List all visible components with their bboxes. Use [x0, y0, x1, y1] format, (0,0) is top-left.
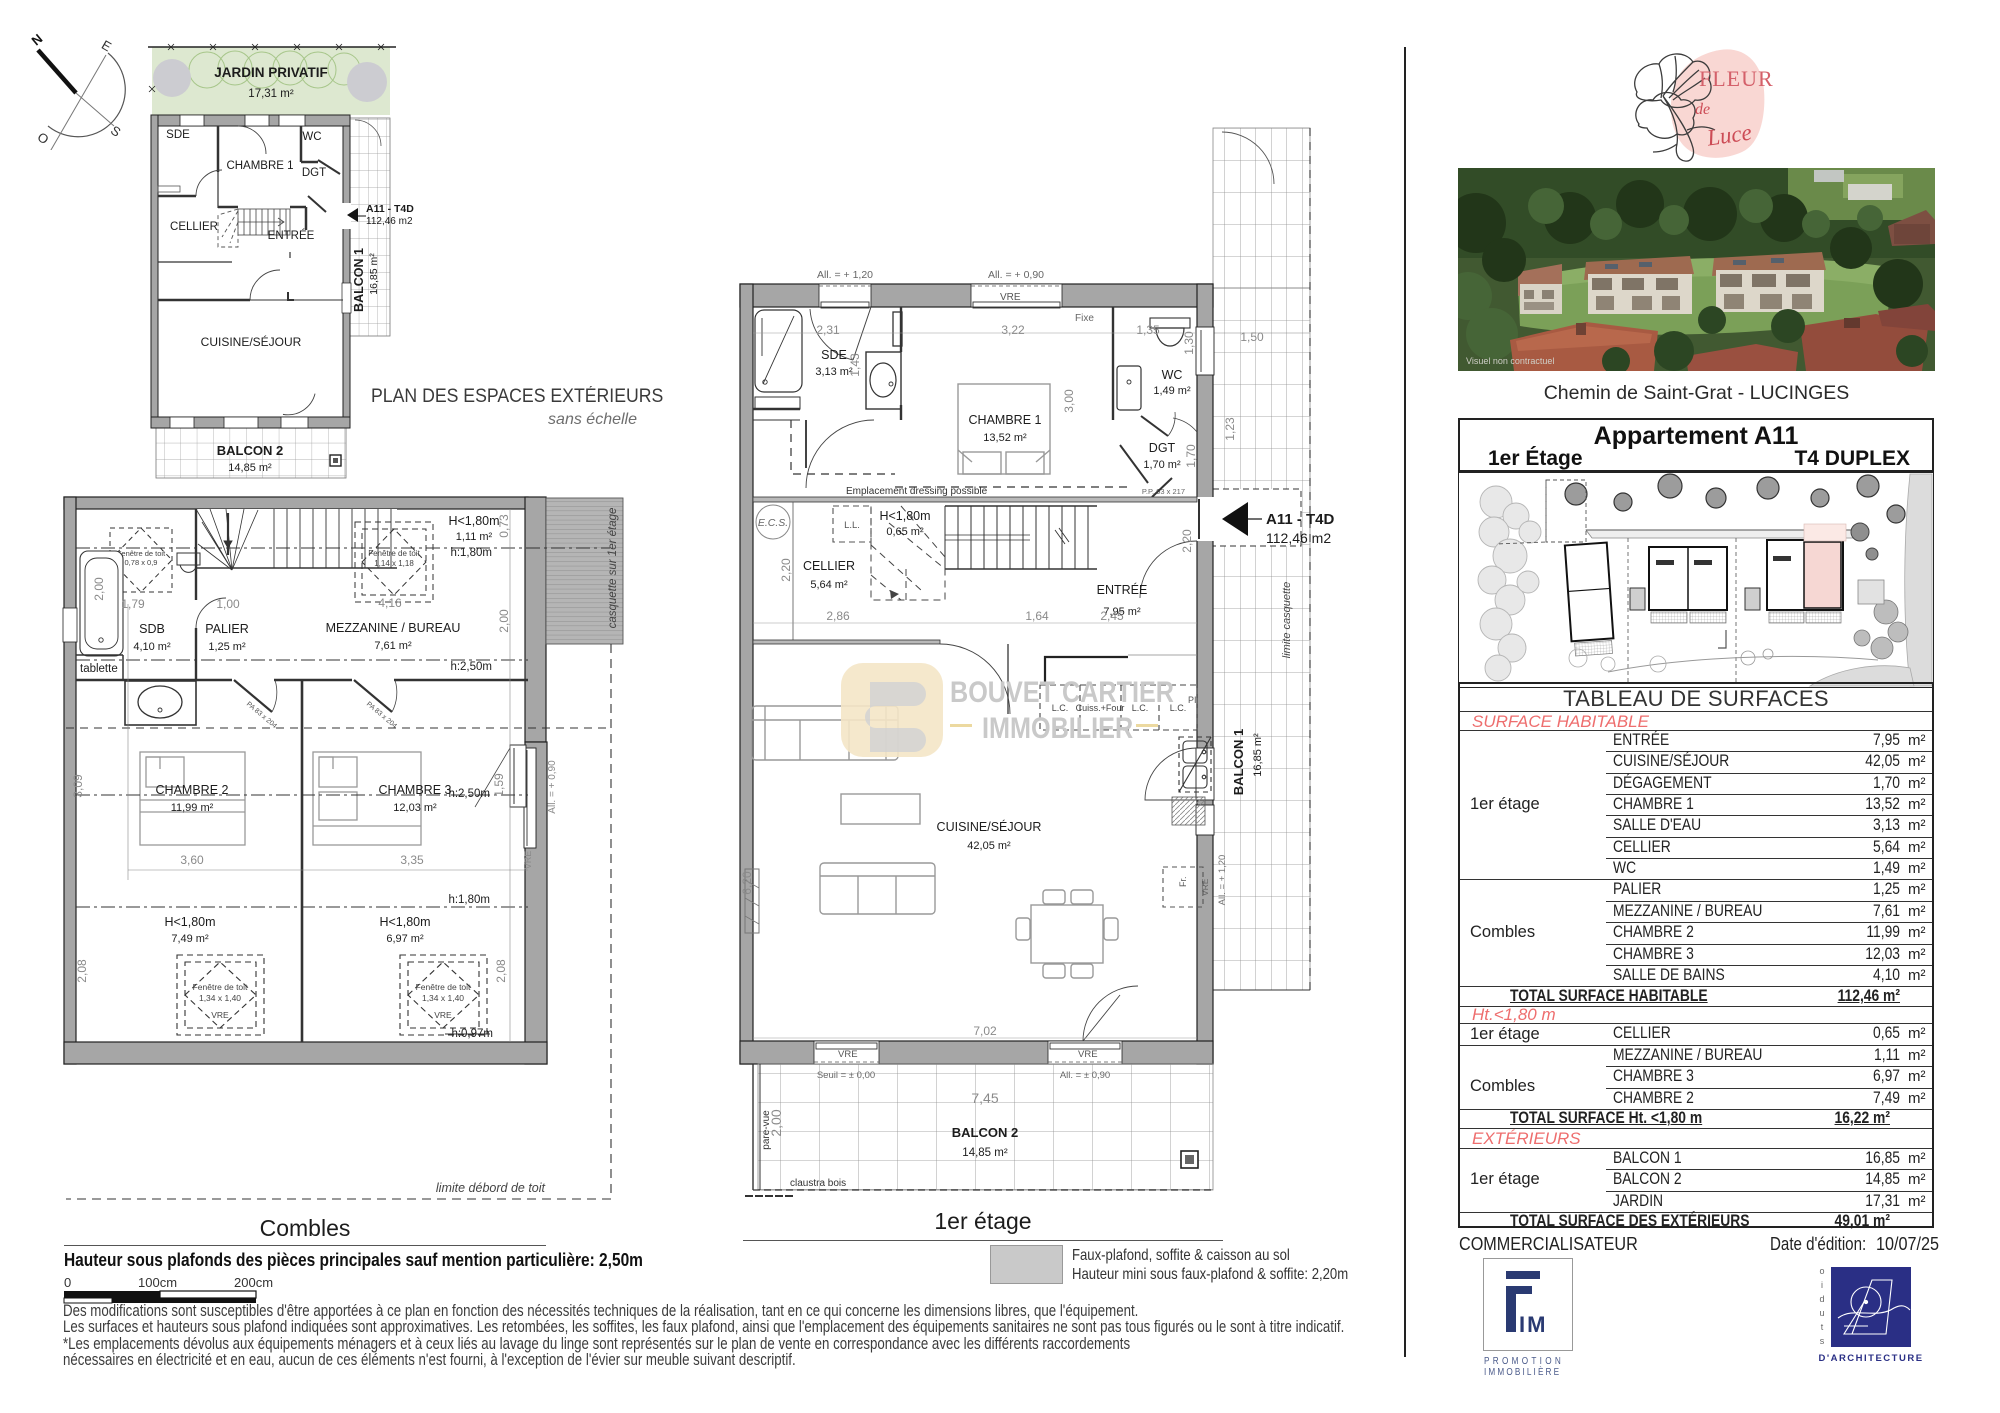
- svg-text:All. = + 0,90: All. = + 0,90: [547, 760, 558, 814]
- svg-text:2,45: 2,45: [1100, 609, 1124, 623]
- svg-text:112,46 m2: 112,46 m2: [366, 216, 413, 227]
- svg-text:PA 83 x 204: PA 83 x 204: [245, 701, 278, 730]
- svg-text:CHAMBRE 3: CHAMBRE 3: [379, 783, 452, 797]
- svg-text:6,20: 6,20: [740, 871, 754, 895]
- svg-text:O: O: [35, 129, 52, 147]
- svg-text:1,64: 1,64: [1025, 609, 1049, 623]
- svg-text:PI: PI: [1188, 695, 1197, 705]
- svg-text:L.L.: L.L.: [844, 520, 860, 531]
- svg-text:3,60: 3,60: [180, 853, 204, 867]
- svg-text:BALCON 1: BALCON 1: [1231, 729, 1246, 795]
- svg-text:0,73: 0,73: [497, 514, 511, 538]
- svg-text:Fenêtre de toit: Fenêtre de toit: [416, 982, 471, 992]
- svg-text:1,35: 1,35: [1136, 323, 1160, 337]
- svg-text:D'ARCHITECTURE: D'ARCHITECTURE: [1818, 1353, 1923, 1364]
- svg-text:14,85 m²: 14,85 m²: [228, 462, 272, 474]
- svg-text:t: t: [1821, 1322, 1824, 1332]
- svg-text:tablette: tablette: [80, 663, 118, 675]
- svg-text:112,46 m2: 112,46 m2: [1266, 530, 1331, 546]
- svg-text:limite casquette: limite casquette: [1281, 582, 1293, 658]
- svg-text:2,86: 2,86: [826, 609, 850, 623]
- svg-text:1,11 m²: 1,11 m²: [456, 531, 493, 543]
- svg-text:4,16: 4,16: [378, 596, 402, 610]
- svg-text:17,31 m²: 17,31 m²: [248, 88, 294, 100]
- svg-text:VRE: VRE: [838, 1049, 858, 1060]
- svg-text:WC: WC: [1162, 368, 1183, 382]
- svg-text:CHAMBRE 1: CHAMBRE 1: [969, 413, 1042, 427]
- svg-text:1,14 x 1,18: 1,14 x 1,18: [374, 559, 414, 568]
- svg-text:A11 - T4D: A11 - T4D: [366, 203, 414, 215]
- svg-text:ENTRÉE: ENTRÉE: [1097, 582, 1148, 597]
- svg-text:6,97 m²: 6,97 m²: [386, 933, 424, 945]
- svg-text:N: N: [30, 31, 45, 49]
- svg-text:Fixe: Fixe: [1075, 313, 1094, 324]
- svg-text:h:2,50m: h:2,50m: [448, 788, 490, 800]
- svg-text:DGT: DGT: [1149, 441, 1176, 455]
- svg-text:0,65 m²: 0,65 m²: [886, 526, 924, 538]
- svg-text:CHAMBRE 1: CHAMBRE 1: [226, 160, 293, 172]
- svg-text:1,70: 1,70: [1184, 444, 1198, 468]
- svg-text:200cm: 200cm: [234, 1275, 273, 1290]
- svg-text:i: i: [1821, 1280, 1823, 1290]
- svg-text:0: 0: [64, 1275, 71, 1290]
- svg-text:VRE: VRE: [1000, 292, 1021, 303]
- svg-text:0,78 x 0,9: 0,78 x 0,9: [125, 558, 158, 567]
- svg-text:1,34 x 1,40: 1,34 x 1,40: [422, 993, 464, 1003]
- svg-text:1,30: 1,30: [1182, 331, 1196, 355]
- svg-text:s: s: [1820, 1336, 1825, 1346]
- svg-text:VRE: VRE: [211, 1010, 229, 1020]
- svg-text:CUISINE/SÉJOUR: CUISINE/SÉJOUR: [937, 819, 1042, 834]
- svg-text:1,79: 1,79: [121, 597, 145, 611]
- svg-text:SDE: SDE: [166, 129, 190, 141]
- svg-text:3,00: 3,00: [1062, 389, 1076, 413]
- svg-text:1,50: 1,50: [1240, 330, 1264, 344]
- svg-text:BALCON 1: BALCON 1: [352, 248, 366, 312]
- svg-text:Fenêtre de toit: Fenêtre de toit: [193, 982, 248, 992]
- svg-text:MEZZANINE / BUREAU: MEZZANINE / BUREAU: [326, 621, 461, 635]
- svg-text:11,99 m²: 11,99 m²: [171, 802, 214, 814]
- svg-text:16,85 m²: 16,85 m²: [1252, 733, 1264, 777]
- svg-text:Fenêtre de toit: Fenêtre de toit: [368, 549, 420, 558]
- svg-text:2,20: 2,20: [1180, 529, 1194, 553]
- svg-text:H<1,80m: H<1,80m: [164, 915, 215, 929]
- svg-text:13,52 m²: 13,52 m²: [983, 432, 1027, 444]
- svg-text:limite débord de toit: limite débord de toit: [436, 1181, 546, 1195]
- svg-text:u: u: [1819, 1308, 1824, 1318]
- svg-text:WC: WC: [302, 131, 321, 143]
- svg-text:E: E: [99, 37, 114, 54]
- svg-text:d: d: [1819, 1294, 1824, 1304]
- svg-text:7,02: 7,02: [973, 1024, 997, 1038]
- svg-text:SDE: SDE: [821, 348, 847, 362]
- svg-text:All. = + 1,20: All. = + 1,20: [1217, 855, 1228, 906]
- svg-text:16,85 m²: 16,85 m²: [368, 253, 380, 295]
- svg-text:1,00: 1,00: [216, 597, 240, 611]
- svg-text:BALCON 2: BALCON 2: [217, 443, 283, 458]
- svg-text:VRE: VRE: [1078, 1049, 1098, 1060]
- svg-text:de: de: [1695, 101, 1710, 118]
- svg-text:1,25 m²: 1,25 m²: [208, 641, 246, 653]
- svg-text:2,00: 2,00: [92, 577, 106, 601]
- svg-text:CUISINE/SÉJOUR: CUISINE/SÉJOUR: [201, 334, 302, 349]
- svg-text:claustra bois: claustra bois: [790, 1178, 846, 1189]
- svg-text:4,10 m²: 4,10 m²: [133, 641, 171, 653]
- svg-text:DGT: DGT: [302, 167, 326, 179]
- svg-text:100cm: 100cm: [138, 1275, 177, 1290]
- svg-text:H<1,80m: H<1,80m: [448, 514, 499, 528]
- svg-text:42,05 m²: 42,05 m²: [967, 840, 1011, 852]
- svg-text:1,70 m²: 1,70 m²: [1143, 459, 1181, 471]
- svg-text:7,49 m²: 7,49 m²: [171, 933, 209, 945]
- svg-text:Fr.: Fr.: [1178, 877, 1188, 888]
- svg-text:IM: IM: [1519, 1312, 1547, 1337]
- svg-text:3,22: 3,22: [1001, 323, 1025, 337]
- svg-text:1,23: 1,23: [1223, 417, 1237, 441]
- svg-text:VRE: VRE: [434, 1010, 452, 1020]
- svg-text:2,08: 2,08: [494, 959, 508, 983]
- svg-text:h:1,80m: h:1,80m: [448, 894, 490, 906]
- svg-text:h:1,80m: h:1,80m: [450, 547, 492, 559]
- svg-text:VRE: VRE: [523, 851, 533, 870]
- svg-text:PALIER: PALIER: [205, 622, 249, 636]
- svg-text:pare-vue: pare-vue: [761, 1110, 772, 1150]
- svg-text:JARDIN PRIVATIF: JARDIN PRIVATIF: [214, 65, 328, 80]
- svg-text:All. = + 0,90: All. = + 0,90: [988, 269, 1044, 281]
- svg-text:H<1,80m: H<1,80m: [379, 915, 430, 929]
- svg-text:3,09: 3,09: [71, 774, 85, 798]
- svg-text:Visuel non contractuel: Visuel non contractuel: [1466, 356, 1554, 366]
- svg-text:casquette sur 1er étage: casquette sur 1er étage: [607, 508, 619, 629]
- svg-text:14,85 m²: 14,85 m²: [962, 1147, 1008, 1159]
- svg-text:CELLIER: CELLIER: [170, 221, 218, 233]
- svg-text:CELLIER: CELLIER: [803, 559, 855, 573]
- svg-text:12,03 m²: 12,03 m²: [393, 802, 437, 814]
- svg-text:Emplacement dressing possible: Emplacement dressing possible: [846, 486, 988, 497]
- svg-text:2,20: 2,20: [779, 558, 793, 582]
- svg-text:3,35: 3,35: [400, 853, 424, 867]
- svg-text:P.P. 93 x 217: P.P. 93 x 217: [1142, 487, 1185, 496]
- svg-text:A11 - T4D: A11 - T4D: [1266, 511, 1335, 528]
- svg-text:Fenêtre de toit: Fenêtre de toit: [117, 549, 166, 558]
- svg-text:2,08: 2,08: [75, 959, 89, 983]
- svg-text:2,31: 2,31: [816, 323, 840, 337]
- svg-text:3,13 m²: 3,13 m²: [815, 366, 853, 378]
- svg-text:S: S: [108, 123, 124, 140]
- svg-text:H<1,80m: H<1,80m: [879, 509, 930, 523]
- svg-text:h:2,50m: h:2,50m: [450, 661, 492, 673]
- svg-text:E.C.S.: E.C.S.: [758, 517, 788, 529]
- svg-text:ENTRÉE: ENTRÉE: [268, 229, 315, 242]
- svg-text:BALCON 2: BALCON 2: [952, 1125, 1018, 1140]
- svg-text:PA 83 x 204: PA 83 x 204: [365, 701, 398, 730]
- svg-text:All. = + 1,20: All. = + 1,20: [817, 269, 873, 281]
- svg-text:1,59: 1,59: [492, 773, 506, 797]
- svg-text:7,61 m²: 7,61 m²: [374, 640, 412, 652]
- svg-text:o: o: [1819, 1266, 1824, 1276]
- svg-text:SDB: SDB: [139, 622, 165, 636]
- svg-text:5,64 m²: 5,64 m²: [810, 579, 848, 591]
- svg-text:1,34 x 1,40: 1,34 x 1,40: [199, 993, 241, 1003]
- svg-text:FLEUR: FLEUR: [1699, 66, 1774, 91]
- svg-text:1,49 m²: 1,49 m²: [1153, 385, 1191, 397]
- svg-text:CHAMBRE 2: CHAMBRE 2: [156, 783, 229, 797]
- svg-text:2,00: 2,00: [497, 609, 511, 633]
- svg-text:VRE: VRE: [1200, 878, 1210, 896]
